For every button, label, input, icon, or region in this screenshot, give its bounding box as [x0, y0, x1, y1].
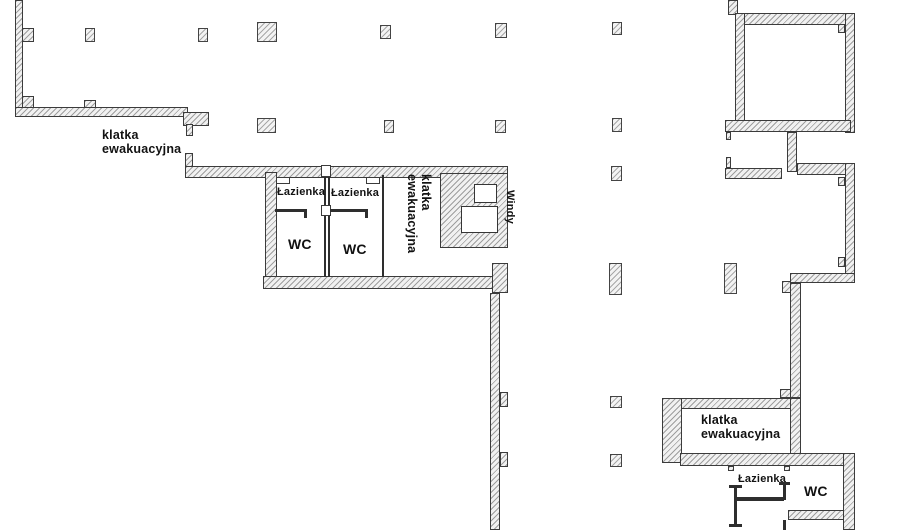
- column: [495, 23, 507, 38]
- wall-segment: [725, 120, 851, 132]
- column: [612, 22, 622, 35]
- column: [257, 22, 277, 42]
- wall-segment: [845, 13, 855, 133]
- partition-wall: [328, 177, 330, 277]
- partition-cap: [321, 165, 331, 177]
- partition-wall: [783, 520, 786, 530]
- wall-segment: [662, 398, 801, 409]
- column: [380, 25, 391, 39]
- partition-wall: [382, 175, 384, 277]
- floor-plan: klatka ewakuacyjna klatka ewakuacyjna kl…: [0, 0, 900, 530]
- label-stair-middle: klatka ewakuacyjna: [404, 174, 432, 266]
- wall-segment: [788, 510, 844, 520]
- wall-segment: [787, 132, 797, 172]
- wall-pilaster: [84, 100, 96, 108]
- elevator-car: [461, 206, 498, 233]
- column: [609, 263, 622, 295]
- partition-cap: [729, 524, 742, 527]
- wall-segment: [186, 124, 193, 136]
- label-stair-top-left: klatka ewakuacyjna: [102, 129, 181, 156]
- partition-cap: [729, 485, 742, 488]
- wall-segment: [780, 389, 791, 398]
- column: [495, 120, 506, 133]
- label-bathroom-bottom-right: Łazienka: [738, 473, 786, 485]
- wall-segment: [492, 263, 508, 293]
- column: [198, 28, 208, 42]
- door-jamb: [728, 466, 734, 471]
- label-bathroom-left: Łazienka: [277, 186, 325, 198]
- label-line: ewakuacyjna: [405, 174, 419, 266]
- label-line: klatka: [419, 174, 433, 266]
- door-jamb: [726, 157, 731, 168]
- wall-pilaster: [22, 28, 34, 42]
- door-jamb: [726, 132, 731, 140]
- wall-segment: [843, 453, 855, 530]
- door-jamb: [304, 209, 307, 218]
- label-line: ewakuacyjna: [102, 143, 181, 157]
- label-line: ewakuacyjna: [701, 428, 780, 442]
- door-jamb: [366, 177, 380, 184]
- column: [610, 454, 622, 467]
- column: [611, 166, 622, 181]
- wall-notch: [838, 24, 845, 33]
- label-wc-left: WC: [288, 237, 312, 251]
- wall-notch: [838, 257, 845, 267]
- wall-segment: [680, 453, 855, 466]
- wall-segment: [790, 273, 855, 283]
- wall-segment: [725, 168, 782, 179]
- wall-notch: [838, 177, 845, 186]
- column: [384, 120, 394, 133]
- partition-wall: [734, 487, 737, 527]
- door-jamb: [500, 452, 508, 467]
- label-stair-right: klatka ewakuacyjna: [701, 414, 780, 441]
- wall-segment: [265, 172, 277, 283]
- partition-wall: [737, 497, 784, 501]
- door-jamb: [500, 392, 508, 407]
- door-jamb: [784, 466, 790, 471]
- wall-segment: [735, 13, 855, 25]
- partition-wall: [783, 483, 786, 500]
- wall-segment: [490, 293, 500, 530]
- wall-segment: [845, 163, 855, 283]
- door-jamb: [365, 209, 368, 218]
- label-wc-bottom-right: WC: [804, 484, 828, 498]
- wall-segment: [790, 283, 801, 398]
- wall-segment: [15, 107, 188, 117]
- wall-segment: [263, 276, 494, 289]
- wall-segment: [662, 398, 682, 463]
- partition-wall: [330, 209, 368, 212]
- wall-segment: [735, 13, 745, 131]
- column: [257, 118, 276, 133]
- label-wc-middle: WC: [343, 242, 367, 256]
- label-line: klatka: [102, 129, 181, 143]
- partition-wall: [275, 209, 307, 212]
- label-elevators: Windy: [504, 190, 516, 226]
- label-line: klatka: [701, 414, 780, 428]
- column: [724, 263, 737, 294]
- door-jamb: [276, 177, 290, 184]
- label-bathroom-middle: Łazienka: [331, 187, 379, 199]
- column: [85, 28, 95, 42]
- elevator-car: [474, 184, 497, 203]
- column: [612, 118, 622, 132]
- column: [610, 396, 622, 408]
